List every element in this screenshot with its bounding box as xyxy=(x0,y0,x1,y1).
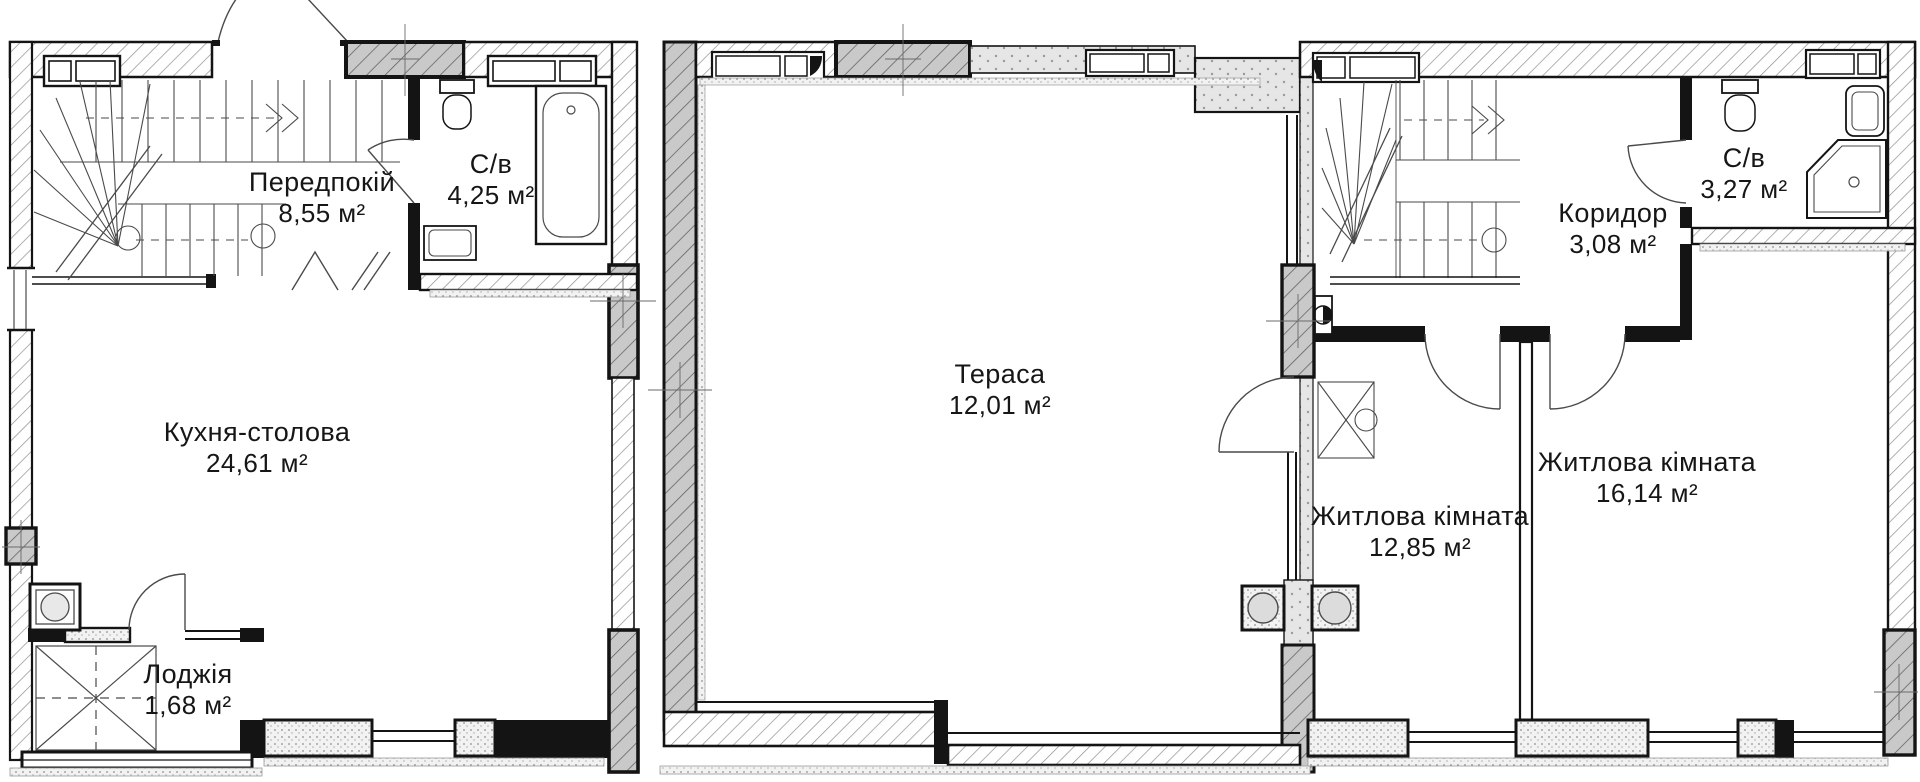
room-area: 16,14 м² xyxy=(1538,478,1756,509)
loggia-door-arc xyxy=(129,574,185,630)
plan-level-1 xyxy=(6,0,638,776)
room-area: 12,01 м² xyxy=(949,390,1051,421)
kitchen-appliance-icon xyxy=(30,584,80,630)
terrace-door-arc xyxy=(1219,377,1294,452)
room-door-arc-right xyxy=(1550,334,1625,409)
room-area: 4,25 м² xyxy=(447,180,534,211)
wall-hall-bath-divider xyxy=(408,77,420,290)
room-label-sv-2: С/в 3,27 м² xyxy=(1700,143,1787,205)
wall-loggia-bottom xyxy=(10,752,262,776)
wall-terrace-bottom xyxy=(660,700,1310,774)
sill-bath-bottom xyxy=(430,290,630,297)
entry-door-arc xyxy=(212,0,348,46)
room-name: Лоджія xyxy=(144,659,233,690)
sink-icon-l2 xyxy=(1846,86,1884,136)
window-hall-top xyxy=(44,56,120,86)
electric-panel-icon xyxy=(1314,296,1332,334)
room-name: С/в xyxy=(447,149,534,180)
room-label-loggia: Лоджія 1,68 м² xyxy=(144,659,233,721)
window-bath-top-l2 xyxy=(1806,50,1880,78)
wall-kitchen-bottom xyxy=(240,720,609,766)
room-label-kitchen: Кухня-столова 24,61 м² xyxy=(164,417,351,479)
room-label-living-2: Житлова кімната 16,14 м² xyxy=(1538,447,1756,509)
room-name: Передпокій xyxy=(249,167,395,198)
wall-terrace-right xyxy=(1282,42,1314,772)
equipment-symbol xyxy=(1318,382,1377,458)
room-area: 3,08 м² xyxy=(1558,229,1667,260)
passage-opening-mark xyxy=(292,252,390,290)
room-area: 8,55 м² xyxy=(249,198,395,229)
room-label-corridor: Коридор 3,08 м² xyxy=(1558,198,1667,260)
bath-door-arc-l2 xyxy=(1628,140,1686,203)
room-label-living-1: Житлова кімната 12,85 м² xyxy=(1311,501,1529,563)
room-area: 12,85 м² xyxy=(1311,532,1529,563)
room-label-sv-1: С/в 4,25 м² xyxy=(447,149,534,211)
room-name: Житлова кімната xyxy=(1311,501,1529,532)
shower-icon-l2 xyxy=(1807,140,1886,218)
room-label-peredpokii: Передпокій 8,55 м² xyxy=(249,167,395,229)
washing-machine-icon xyxy=(424,226,476,260)
toilet-icon xyxy=(440,80,474,129)
wall-bath-divider-l2 xyxy=(1680,77,1692,340)
wall-bath-bottom xyxy=(420,274,637,290)
wall-right xyxy=(609,42,638,772)
room-label-terrace: Тераса 12,01 м² xyxy=(949,359,1051,421)
toilet-icon-l2 xyxy=(1722,80,1758,131)
stair-edge xyxy=(32,274,216,288)
bathtub-icon xyxy=(536,86,606,244)
loggia-glazing-box xyxy=(36,646,156,750)
wall-bottom-l2 xyxy=(1308,720,1888,766)
wall-bath-bottom-l2 xyxy=(1692,228,1915,244)
window-left-wall xyxy=(7,267,35,331)
window-bath-top xyxy=(488,56,596,86)
terrace-inner-trim-left xyxy=(698,85,705,700)
wall-right-l2 xyxy=(1884,42,1915,755)
window-terrace-top xyxy=(712,52,824,80)
room-name: Житлова кімната xyxy=(1538,447,1756,478)
room-name: Коридор xyxy=(1558,198,1667,229)
floor-plan: Передпокій 8,55 м² С/в 4,25 м² Кухня-сто… xyxy=(0,0,1920,782)
terrace-inner-trim-top xyxy=(700,78,1260,85)
room-area: 24,61 м² xyxy=(164,448,351,479)
room-area: 1,68 м² xyxy=(144,690,233,721)
wall-left xyxy=(6,42,36,760)
room-area: 3,27 м² xyxy=(1700,174,1787,205)
window-l2-top-left xyxy=(1313,53,1419,82)
room-name: С/в xyxy=(1700,143,1787,174)
room-name: Тераса xyxy=(949,359,1051,390)
plan-level-2 xyxy=(1300,42,1915,766)
window-terrace-top-2 xyxy=(1086,50,1174,76)
room-door-arc-left xyxy=(1425,334,1500,409)
staircase-level2 xyxy=(1322,80,1520,284)
room-name: Кухня-столова xyxy=(164,417,351,448)
sill-bath-bottom-l2 xyxy=(1700,244,1905,251)
